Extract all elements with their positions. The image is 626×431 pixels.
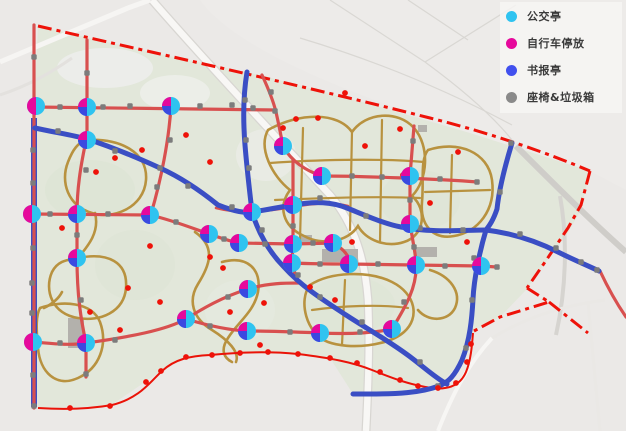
- bicycle-parking-dot: [280, 125, 286, 131]
- bench-trash-dot: [401, 299, 406, 304]
- bench-trash-dot: [497, 189, 502, 194]
- bench-trash-dot: [442, 263, 447, 268]
- bicycle-parking-dot: [435, 385, 441, 391]
- bicycle-parking-dot: [397, 126, 403, 132]
- bench-trash-dot: [78, 297, 83, 302]
- poi-marker[interactable]: [313, 167, 331, 185]
- bicycle-parking-dot: [315, 115, 321, 121]
- poi-marker[interactable]: [177, 310, 195, 328]
- poi-marker[interactable]: [238, 322, 256, 340]
- bench-trash-dot: [290, 223, 295, 228]
- bench-trash-dot: [197, 103, 202, 108]
- bench-trash-dot: [29, 280, 34, 285]
- bicycle-parking-dot: [342, 90, 348, 96]
- bench-trash-dot: [460, 227, 465, 232]
- poi-marker[interactable]: [162, 97, 180, 115]
- bench-trash-dot: [229, 204, 234, 209]
- bicycle-parking-dot: [362, 143, 368, 149]
- bench-trash-dot: [30, 147, 35, 152]
- bench-trash-dot: [375, 261, 380, 266]
- bench-trash-dot: [379, 174, 384, 179]
- bicycle-parking-dot: [112, 155, 118, 161]
- newsstand-swatch-icon: [506, 65, 517, 76]
- bench-trash-dot: [83, 371, 88, 376]
- bicycle-parking-dot: [158, 368, 164, 374]
- bicycle-parking-dot: [220, 265, 226, 271]
- bench-trash-dot: [553, 245, 558, 250]
- bicycle-parking-dot: [147, 243, 153, 249]
- bench-trash-dot: [157, 165, 162, 170]
- bench-trash-dot: [317, 261, 322, 266]
- bench-trash-dot: [246, 165, 251, 170]
- bench-trash-dot: [272, 108, 277, 113]
- bicycle-parking-dot: [354, 360, 360, 366]
- poi-marker[interactable]: [230, 234, 248, 252]
- bicycle-parking-dot: [257, 342, 263, 348]
- bench-trash-dot: [268, 89, 273, 94]
- bench-trash-swatch-icon: [506, 92, 517, 103]
- bicycle-parking-swatch-icon: [506, 38, 517, 49]
- poi-marker[interactable]: [200, 225, 218, 243]
- poi-marker[interactable]: [274, 137, 292, 155]
- bicycle-parking-dot: [183, 132, 189, 138]
- bench-trash-dot: [243, 137, 248, 142]
- bench-trash-dot: [474, 179, 479, 184]
- bench-trash-dot: [417, 359, 422, 364]
- bench-trash-dot: [57, 104, 62, 109]
- bench-trash-dot: [31, 54, 36, 59]
- poi-marker[interactable]: [401, 167, 419, 185]
- legend-label: 座椅&垃圾箱: [527, 89, 595, 105]
- bicycle-parking-dot: [464, 359, 470, 365]
- poi-marker[interactable]: [383, 320, 401, 338]
- bench-trash-dot: [47, 211, 52, 216]
- bicycle-parking-dot: [107, 403, 113, 409]
- bench-trash-dot: [207, 323, 212, 328]
- bench-trash-dot: [594, 267, 599, 272]
- bench-trash-dot: [363, 213, 368, 218]
- bicycle-parking-dot: [59, 225, 65, 231]
- bicycle-parking-dot: [327, 355, 333, 361]
- legend-label: 公交亭: [527, 8, 562, 24]
- poi-marker[interactable]: [141, 206, 159, 224]
- bench-trash-dot: [229, 102, 234, 107]
- bench-trash-dot: [167, 137, 172, 142]
- poi-marker[interactable]: [77, 334, 95, 352]
- bench-trash-dot: [242, 97, 247, 102]
- poi-marker[interactable]: [284, 196, 302, 214]
- legend-label: 自行车停放: [527, 35, 585, 51]
- bicycle-parking-dot: [67, 405, 73, 411]
- bench-trash-dot: [262, 241, 267, 246]
- bench-trash-dot: [31, 403, 36, 408]
- bench-trash-dot: [84, 70, 89, 75]
- bicycle-parking-dot: [293, 116, 299, 122]
- bench-trash-dot: [154, 184, 159, 189]
- poi-marker[interactable]: [401, 215, 419, 233]
- legend-item-bicycle-parking: 自行车停放: [506, 35, 620, 51]
- bicycle-parking-dot: [455, 149, 461, 155]
- poi-marker[interactable]: [68, 249, 86, 267]
- bicycle-parking-dot: [87, 309, 93, 315]
- legend-item-bench-and-trash: 座椅&垃圾箱: [506, 89, 620, 105]
- bench-trash-dot: [517, 231, 522, 236]
- poi-marker[interactable]: [283, 254, 301, 272]
- bench-trash-dot: [112, 148, 117, 153]
- poi-marker[interactable]: [472, 257, 490, 275]
- bench-trash-dot: [30, 372, 35, 377]
- legend-item-bus-kiosk: 公交亭: [506, 8, 620, 24]
- poi-marker[interactable]: [78, 98, 96, 116]
- bicycle-parking-dot: [332, 297, 338, 303]
- bench-trash-dot: [317, 294, 322, 299]
- bicycle-parking-dot: [464, 239, 470, 245]
- bicycle-parking-dot: [307, 284, 313, 290]
- bench-trash-dot: [317, 195, 322, 200]
- bicycle-parking-dot: [415, 383, 421, 389]
- bicycle-parking-dot: [125, 285, 131, 291]
- bicycle-parking-dot: [468, 341, 474, 347]
- bench-trash-dot: [295, 272, 300, 277]
- poi-marker[interactable]: [243, 203, 261, 221]
- bicycle-parking-dot: [139, 147, 145, 153]
- poi-marker[interactable]: [24, 333, 42, 351]
- poi-marker[interactable]: [78, 131, 96, 149]
- bicycle-parking-dot: [427, 200, 433, 206]
- bicycle-parking-dot: [227, 309, 233, 315]
- bicycle-parking-dot: [117, 327, 123, 333]
- bicycle-parking-dot: [207, 254, 213, 260]
- bench-trash-dot: [105, 211, 110, 216]
- bench-trash-dot: [127, 103, 132, 108]
- bench-trash-dot: [359, 319, 364, 324]
- bench-trash-dot: [410, 138, 415, 143]
- bench-trash-dot: [407, 197, 412, 202]
- bus-kiosk-swatch-icon: [506, 11, 517, 22]
- bicycle-parking-dot: [377, 369, 383, 375]
- bicycle-parking-dot: [93, 169, 99, 175]
- bench-trash-dot: [185, 183, 190, 188]
- bicycle-parking-dot: [295, 351, 301, 357]
- bench-trash-dot: [225, 294, 230, 299]
- bench-trash-dot: [30, 245, 35, 250]
- bench-trash-dot: [287, 329, 292, 334]
- bicycle-parking-dot: [143, 379, 149, 385]
- poi-marker[interactable]: [239, 280, 257, 298]
- bench-trash-dot: [437, 176, 442, 181]
- bench-trash-dot: [83, 167, 88, 172]
- bench-trash-dot: [357, 329, 362, 334]
- bicycle-parking-dot: [453, 380, 459, 386]
- bench-trash-dot: [250, 105, 255, 110]
- bench-trash-dot: [469, 297, 474, 302]
- site-plan-page: 公交亭 自行车停放 书报亭 座椅&垃圾箱: [0, 0, 626, 431]
- bicycle-parking-dot: [207, 159, 213, 165]
- bench-trash-dot: [74, 232, 79, 237]
- poi-marker[interactable]: [340, 255, 358, 273]
- bicycle-parking-dot: [237, 350, 243, 356]
- legend-item-newsstand: 书报亭: [506, 62, 620, 78]
- bench-trash-dot: [55, 128, 60, 133]
- bench-trash-dot: [57, 340, 62, 345]
- bench-trash-dot: [578, 259, 583, 264]
- poi-marker[interactable]: [284, 235, 302, 253]
- bicycle-parking-dot: [265, 349, 271, 355]
- bench-trash-dot: [508, 140, 513, 145]
- bicycle-parking-dot: [157, 299, 163, 305]
- poi-marker[interactable]: [23, 205, 41, 223]
- poi-marker[interactable]: [27, 97, 45, 115]
- bench-trash-dot: [494, 264, 499, 269]
- bench-trash-dot: [100, 104, 105, 109]
- poi-marker[interactable]: [407, 256, 425, 274]
- bench-trash-dot: [310, 240, 315, 245]
- bench-trash-dot: [30, 180, 35, 185]
- bicycle-parking-dot: [183, 354, 189, 360]
- bicycle-parking-dot: [261, 300, 267, 306]
- bicycle-parking-dot: [209, 352, 215, 358]
- bench-trash-dot: [411, 244, 416, 249]
- poi-marker[interactable]: [68, 205, 86, 223]
- bench-trash-dot: [112, 337, 117, 342]
- bench-trash-dot: [259, 227, 264, 232]
- bench-trash-dot: [349, 173, 354, 178]
- bicycle-parking-dot: [397, 377, 403, 383]
- bench-trash-dot: [221, 236, 226, 241]
- bicycle-parking-dot: [349, 239, 355, 245]
- bench-trash-dot: [173, 219, 178, 224]
- poi-marker[interactable]: [324, 234, 342, 252]
- map-legend: 公交亭 自行车停放 书报亭 座椅&垃圾箱: [500, 2, 622, 113]
- poi-marker[interactable]: [311, 324, 329, 342]
- legend-label: 书报亭: [527, 62, 562, 78]
- bench-trash-dot: [29, 310, 34, 315]
- bench-trash-dot: [463, 345, 468, 350]
